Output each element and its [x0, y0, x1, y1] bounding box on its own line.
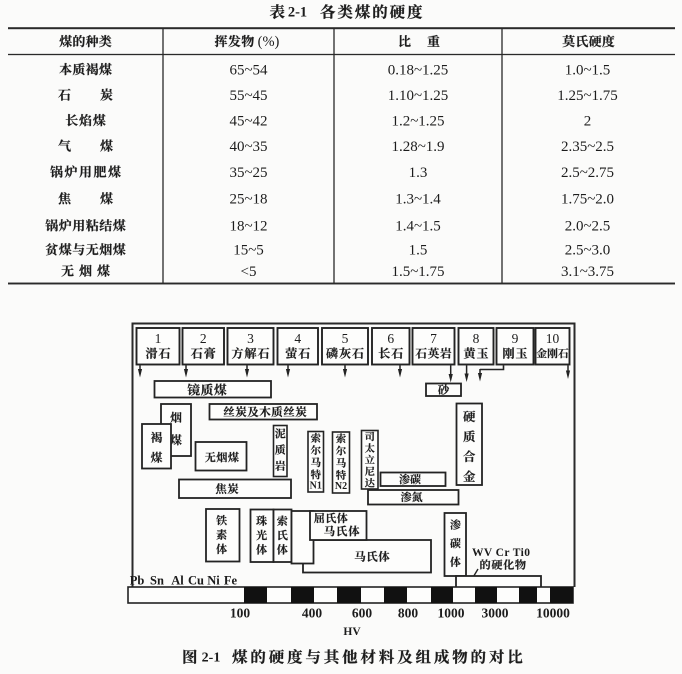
svg-text:WV Cr Ti0: WV Cr Ti0 — [472, 547, 530, 559]
svg-text:2.5~2.75: 2.5~2.75 — [561, 165, 614, 181]
svg-text:1.5: 1.5 — [409, 243, 428, 259]
svg-text:1: 1 — [155, 331, 162, 346]
svg-text:3.1~3.75: 3.1~3.75 — [561, 264, 614, 280]
svg-text:1.25~1.75: 1.25~1.75 — [557, 88, 618, 104]
svg-text:45~42: 45~42 — [229, 114, 267, 130]
svg-text:4: 4 — [294, 331, 301, 346]
svg-text:8: 8 — [473, 331, 480, 346]
svg-text:400: 400 — [302, 606, 323, 621]
svg-text:10000: 10000 — [536, 606, 570, 621]
svg-text:Cu: Cu — [188, 574, 204, 588]
svg-text:N1: N1 — [310, 481, 322, 492]
svg-text:3000: 3000 — [482, 606, 509, 621]
svg-text:600: 600 — [352, 606, 373, 621]
svg-text:N2: N2 — [335, 481, 347, 492]
svg-text:0.18~1.25: 0.18~1.25 — [388, 63, 449, 79]
svg-text:1.10~1.25: 1.10~1.25 — [388, 88, 449, 104]
svg-text:Pb: Pb — [130, 574, 145, 588]
svg-text:40~35: 40~35 — [229, 139, 267, 155]
svg-text:800: 800 — [398, 606, 419, 621]
svg-text:18~12: 18~12 — [229, 219, 267, 235]
svg-text:1.28~1.9: 1.28~1.9 — [391, 139, 444, 155]
svg-text:HV: HV — [343, 626, 361, 638]
svg-text:1.4~1.5: 1.4~1.5 — [395, 219, 441, 235]
svg-text:Fe: Fe — [224, 574, 238, 588]
svg-text:Sn: Sn — [150, 574, 164, 588]
svg-text:(%): (%) — [258, 34, 280, 50]
svg-text:Ni: Ni — [207, 574, 220, 588]
svg-text:5: 5 — [342, 331, 349, 346]
svg-text:25~18: 25~18 — [229, 192, 267, 208]
svg-text:Al: Al — [171, 574, 184, 588]
svg-text:2.0~2.5: 2.0~2.5 — [565, 219, 611, 235]
svg-text:<5: <5 — [241, 264, 257, 280]
svg-text:3: 3 — [247, 331, 254, 346]
svg-text:1.2~1.25: 1.2~1.25 — [391, 114, 444, 130]
svg-text:65~54: 65~54 — [229, 63, 268, 79]
svg-text:6: 6 — [387, 331, 394, 346]
svg-text:2.35~2.5: 2.35~2.5 — [561, 139, 614, 155]
svg-text:100: 100 — [230, 606, 251, 621]
svg-text:2.5~3.0: 2.5~3.0 — [565, 243, 611, 259]
svg-text:9: 9 — [512, 331, 519, 346]
svg-text:55~45: 55~45 — [229, 88, 267, 104]
svg-text:1.75~2.0: 1.75~2.0 — [561, 192, 614, 208]
svg-text:1.3: 1.3 — [409, 165, 428, 181]
svg-text:2-1: 2-1 — [202, 651, 221, 666]
svg-text:2: 2 — [200, 331, 207, 346]
svg-text:2: 2 — [584, 114, 592, 130]
svg-text:1.5~1.75: 1.5~1.75 — [391, 264, 444, 280]
svg-text:1000: 1000 — [438, 606, 465, 621]
svg-text:1.0~1.5: 1.0~1.5 — [565, 63, 611, 79]
svg-text:7: 7 — [430, 331, 437, 346]
svg-text:1.3~1.4: 1.3~1.4 — [395, 192, 441, 208]
svg-text:10: 10 — [546, 331, 560, 346]
svg-text:35~25: 35~25 — [229, 165, 267, 181]
svg-text:15~5: 15~5 — [233, 243, 264, 259]
svg-text:2-1: 2-1 — [288, 5, 307, 21]
